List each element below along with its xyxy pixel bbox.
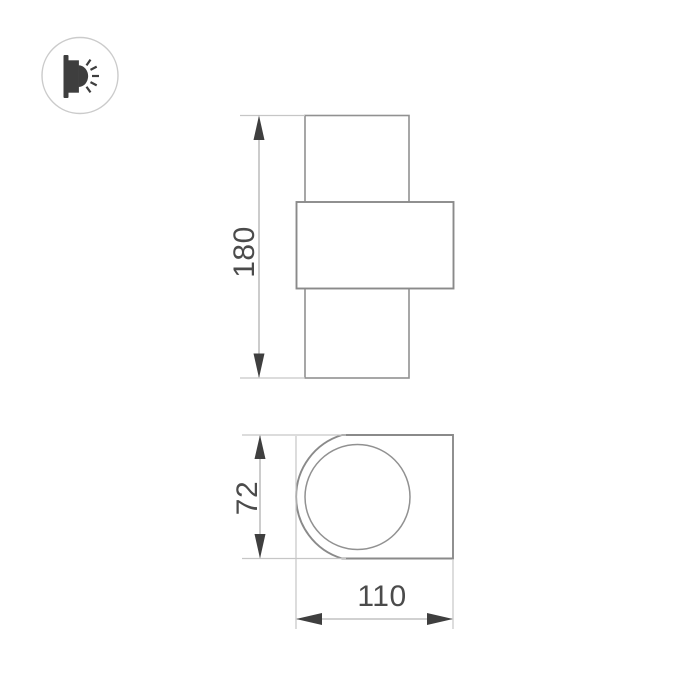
front-view: [297, 116, 454, 379]
arrowhead-down: [254, 354, 265, 379]
side-view: [296, 435, 453, 559]
arrowhead-up: [254, 116, 265, 141]
height-dimension-label: 180: [230, 226, 260, 278]
width-dimension-label: 110: [357, 582, 406, 612]
logo-badge: [42, 38, 118, 114]
depth-dimension-label: 72: [233, 481, 263, 515]
arrowhead-down: [255, 534, 266, 559]
arrowhead-left: [296, 613, 322, 625]
wall-plate-shape: [64, 55, 69, 98]
lamp-body-shape: [68, 60, 79, 92]
arrowhead-right: [427, 613, 453, 625]
mount-plate-front: [297, 202, 454, 289]
mount-plate-profile: [296, 435, 453, 559]
arrowhead-up: [255, 435, 266, 459]
drawing-canvas: 180 72 110: [0, 0, 700, 700]
dimension-drawing: [0, 0, 700, 700]
